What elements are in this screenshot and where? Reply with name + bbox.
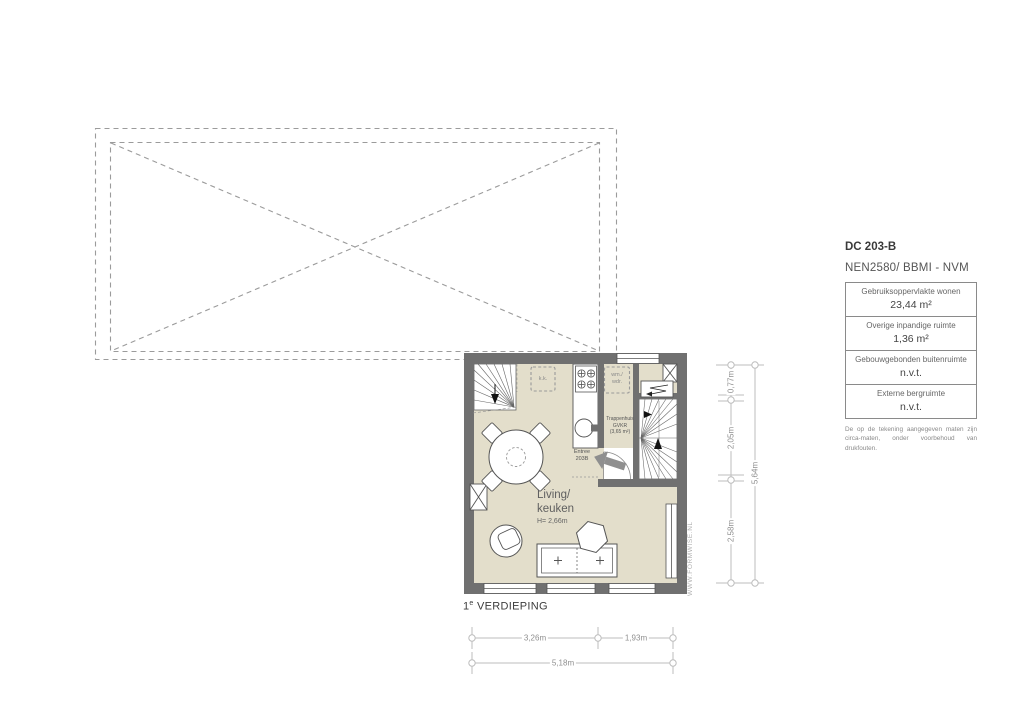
table-row: Gebouwgebonden buitenruimte n.v.t.	[846, 351, 976, 385]
route-arrow-box	[641, 381, 673, 397]
stairwell-label: Trappenhuis GVKR (3,65 m²)	[597, 416, 643, 436]
dim-right-0: 0,77m	[727, 369, 736, 395]
entree-label: Entree 203B	[565, 449, 599, 463]
room-label: Living/ keuken H= 2,66m	[537, 488, 574, 527]
info-panel: DC 203-B NEN2580/ BBMI - NVM Gebruiksopp…	[845, 241, 977, 453]
wm-wdr-label: wm./ wdr.	[604, 372, 630, 386]
dim-bottom-total: 5,18m	[550, 659, 576, 668]
watermark: WWW.FORMWISE.NL	[687, 504, 694, 596]
dim-bottom-1: 1,93m	[623, 634, 649, 643]
shaft-left-wall	[470, 484, 487, 510]
dashed-building-outline	[96, 129, 617, 360]
area-table: Gebruiksoppervlakte wonen 23,44 m² Overi…	[845, 282, 977, 419]
cooktop	[576, 366, 597, 392]
kk-label: k.k.	[531, 376, 555, 383]
room-height: H= 2,66m	[537, 518, 574, 527]
dim-right-total: 5,64m	[751, 460, 760, 486]
table-row: Overige inpandige ruimte 1,36 m²	[846, 317, 976, 351]
sofa	[537, 544, 617, 577]
armchair	[490, 525, 522, 557]
floorplan-page: k.k. wm./ wdr. Trappenhuis GVKR (3,65 m²…	[0, 0, 1024, 724]
dim-bottom-0: 3,26m	[522, 634, 548, 643]
floor-plan	[464, 353, 687, 594]
dim-right-1: 2,05m	[727, 425, 736, 451]
table-row: Externe bergruimte n.v.t.	[846, 385, 976, 418]
dim-right-2: 2,58m	[727, 518, 736, 544]
dining-table	[489, 430, 543, 484]
floor-title: 1e VERDIEPING	[463, 600, 548, 613]
shaft-top-right	[663, 364, 677, 382]
dining-table-set	[481, 422, 550, 491]
table-row: Gebruiksoppervlakte wonen 23,44 m²	[846, 283, 976, 317]
unit-code: DC 203-B	[845, 241, 977, 253]
disclaimer: De op de tekening aangegeven maten zijn …	[845, 425, 977, 453]
measurement-standard: NEN2580/ BBMI - NVM	[845, 262, 977, 274]
